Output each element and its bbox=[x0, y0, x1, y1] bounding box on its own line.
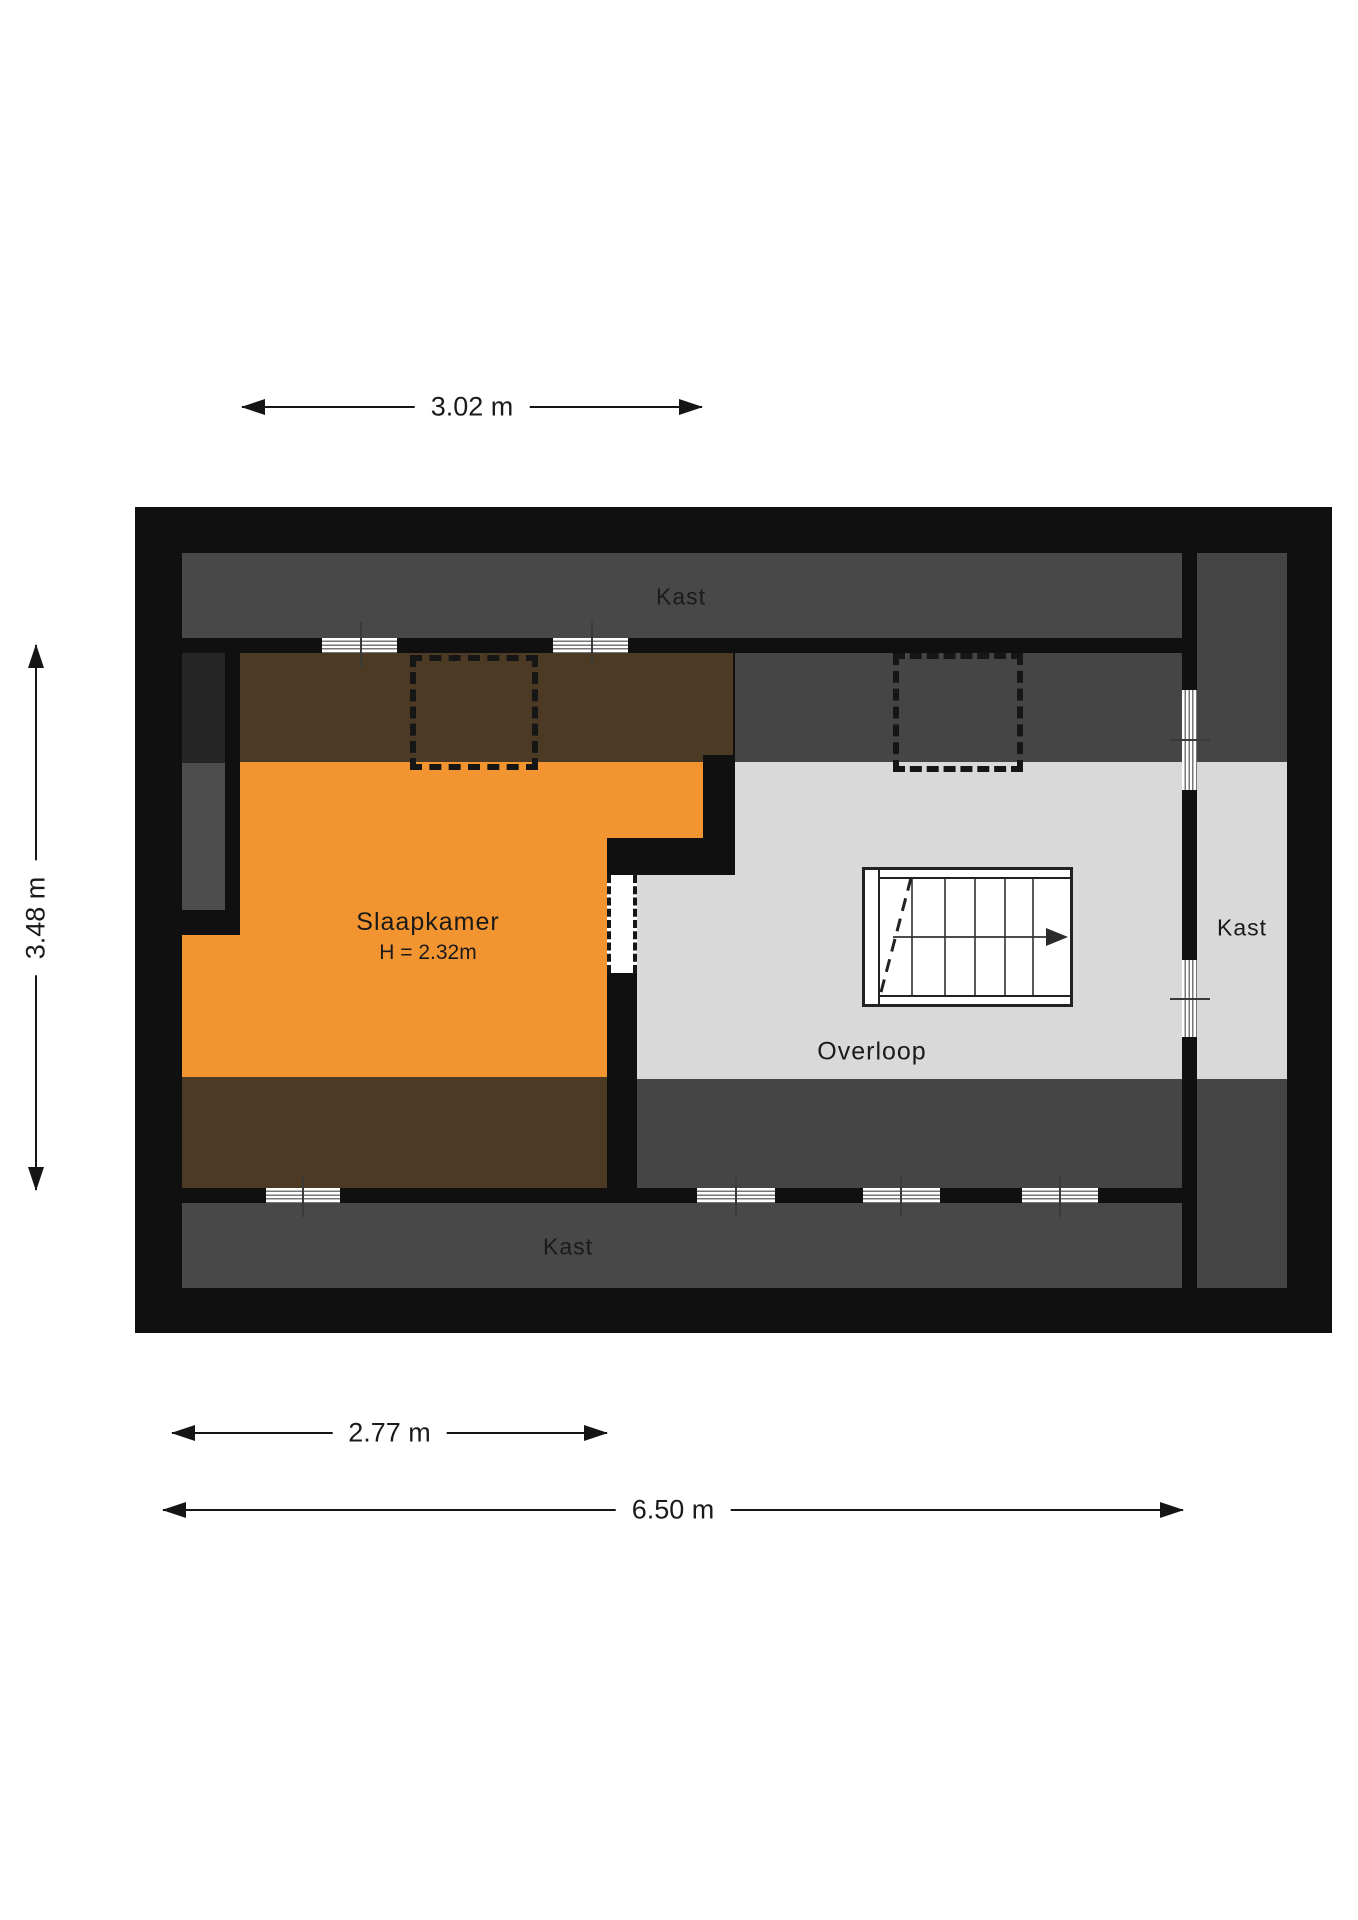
dimension-bottom-total-width-value: 6.50 m bbox=[616, 1495, 731, 1526]
arrow-left-icon bbox=[162, 1502, 186, 1518]
wall-block-left bbox=[225, 653, 240, 935]
closet-bottom-area bbox=[182, 1203, 1197, 1288]
staircase bbox=[862, 867, 1073, 1007]
bedroom-height-label: H = 2.32m bbox=[356, 939, 499, 966]
bedroom-label: Slaapkamer bbox=[356, 906, 499, 939]
window-right-1-tick bbox=[1170, 739, 1210, 741]
arrow-right-icon bbox=[1160, 1502, 1184, 1518]
window-top-2-tick bbox=[591, 622, 593, 667]
wall-bedroom-landing-upper bbox=[703, 755, 735, 838]
window-bottom-3-tick bbox=[900, 1177, 902, 1217]
bedroom-door-opening bbox=[607, 875, 637, 973]
dimension-bottom-bedroom-width-value: 2.77 m bbox=[332, 1418, 447, 1449]
sloped-area-right-top bbox=[1197, 553, 1287, 762]
closet-bottom-label: Kast bbox=[543, 1234, 593, 1261]
arrow-up-icon bbox=[28, 644, 44, 668]
window-bottom-2-tick bbox=[735, 1177, 737, 1217]
window-top-1-tick bbox=[360, 622, 362, 667]
arrow-right-icon bbox=[679, 399, 703, 415]
landing-label: Overloop bbox=[817, 1038, 926, 1067]
knee-column-left bbox=[182, 763, 225, 910]
arrow-left-icon bbox=[171, 1425, 195, 1441]
bedroom-area-upper bbox=[240, 762, 703, 838]
window-right-2-tick bbox=[1170, 998, 1210, 1000]
sloped-area-right-bottom bbox=[1197, 1079, 1287, 1288]
dark-block-top-left bbox=[182, 653, 225, 763]
dimension-left-height-value: 3.48 m bbox=[21, 860, 52, 975]
roof-window-dashed-right bbox=[893, 653, 1023, 772]
window-bottom-1-tick bbox=[302, 1177, 304, 1217]
wall-corner-left bbox=[182, 910, 240, 935]
landing-area-upper bbox=[735, 762, 1182, 838]
attic-floor-bottom bbox=[182, 1077, 607, 1188]
sloped-band-bottom bbox=[637, 1079, 1182, 1188]
arrow-left-icon bbox=[241, 399, 265, 415]
arrow-down-icon bbox=[28, 1167, 44, 1191]
wall-right-partition bbox=[1182, 553, 1197, 1288]
closet-right-label: Kast bbox=[1217, 915, 1267, 942]
floorplan-canvas: Kast Kast Kast Overloop Slaapkamer H = 2… bbox=[0, 0, 1358, 1920]
window-bottom-4-tick bbox=[1059, 1177, 1061, 1217]
arrow-right-icon bbox=[584, 1425, 608, 1441]
wall-bedroom-landing-lower bbox=[607, 973, 637, 1203]
closet-top-label: Kast bbox=[656, 584, 706, 611]
bedroom-label-group: Slaapkamer H = 2.32m bbox=[356, 906, 499, 966]
roof-window-dashed-left bbox=[410, 655, 538, 770]
wall-bedroom-step bbox=[607, 838, 735, 875]
dimension-top-width-value: 3.02 m bbox=[415, 392, 530, 423]
